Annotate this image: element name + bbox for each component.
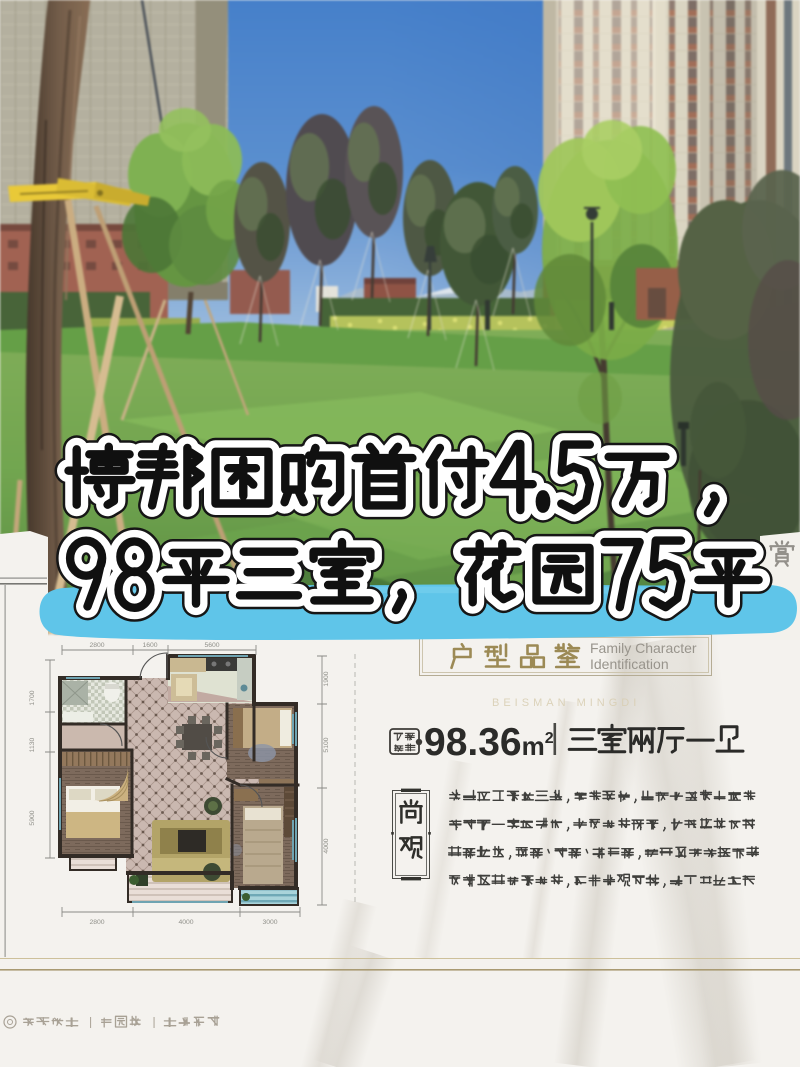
- svg-text:1700: 1700: [29, 690, 36, 705]
- svg-text:5100: 5100: [323, 737, 330, 752]
- svg-text:4000: 4000: [323, 838, 330, 853]
- svg-text:5900: 5900: [29, 810, 36, 825]
- svg-text:3000: 3000: [262, 919, 277, 926]
- svg-text:98.36m2: 98.36m2: [424, 721, 554, 764]
- svg-text:2800: 2800: [89, 919, 104, 926]
- svg-text:BEISMAN MINGDI: BEISMAN MINGDI: [492, 697, 640, 709]
- svg-text:1900: 1900: [323, 671, 330, 686]
- svg-text:4000: 4000: [178, 919, 193, 926]
- svg-text:1130: 1130: [29, 737, 36, 752]
